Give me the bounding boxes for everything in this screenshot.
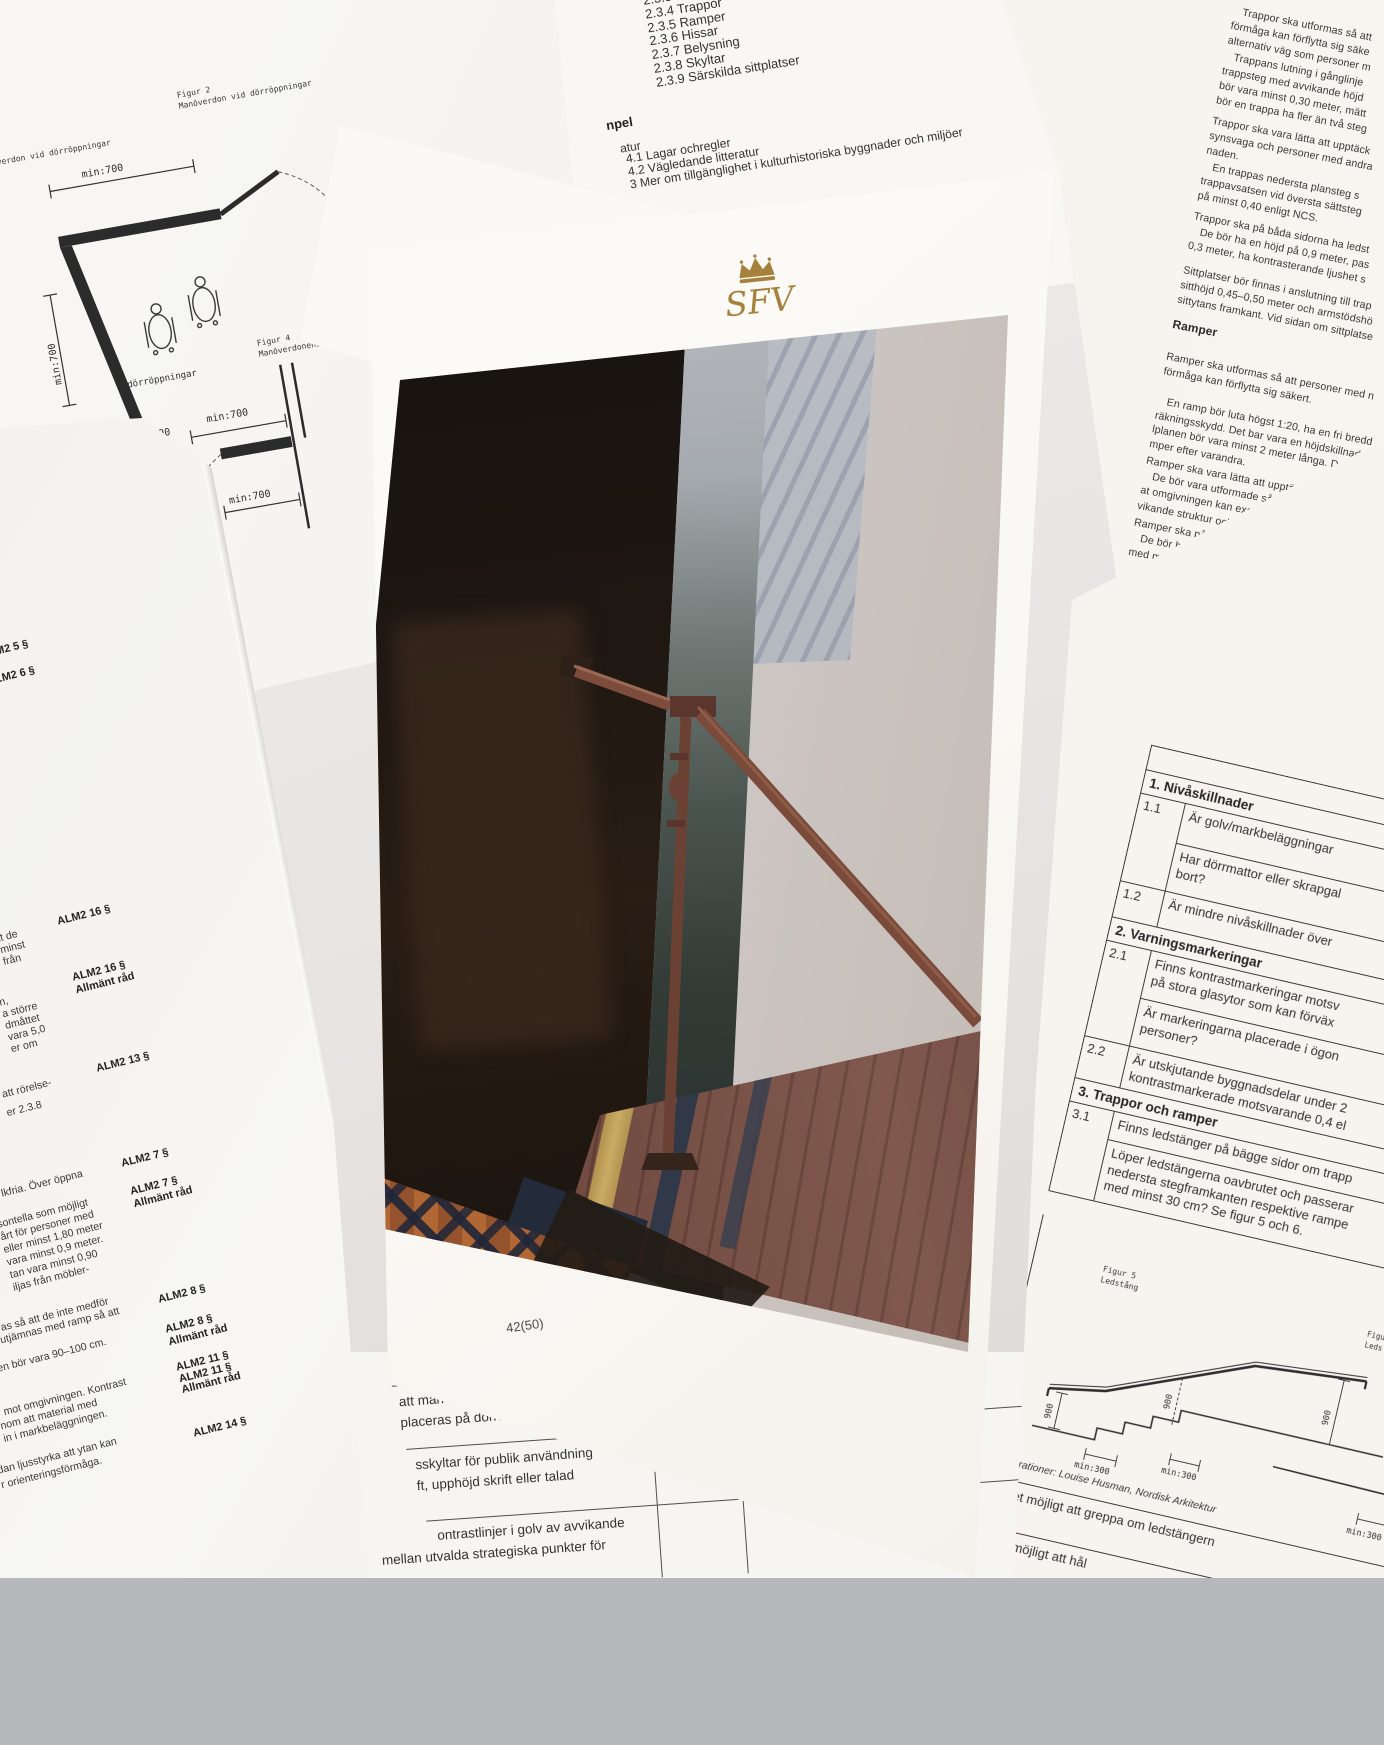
toc-item-list: 2.3.3 2.3.4 Trappor 2.3.5 Ramper 2.3.6 H… (642, 0, 801, 89)
figur2-caption: Figur 2 Manöverdon vid dörröppningar (176, 67, 313, 112)
alm-label: ALM2 16 § Allmänt råd (71, 957, 136, 996)
dim-label: min:700 (81, 163, 124, 181)
alm-label: M2 5 § (0, 638, 30, 658)
alm-label: ALM2 16 § (56, 903, 112, 928)
dim-label: min:300 (1160, 1466, 1197, 1484)
paragraph: Trappor ska utformas så att förmåga kan … (1215, 4, 1384, 138)
dim-label: 900 (1162, 1393, 1175, 1410)
photo-handrail (318, 315, 1008, 1355)
dim-label: min:300 (1345, 1526, 1382, 1544)
checklist-content: 1. Nivåskillnader A 1.1 Är golv/markbelä… (1140, 660, 1384, 831)
alm-body-fragment: n, a större dmåttet vara 5,0 er om (0, 988, 50, 1055)
alm-label: ALM2 8 § Allmänt råd (164, 1309, 229, 1348)
alm-label: ALM2 7 § (120, 1146, 170, 1170)
figur3-caption: dörröppningar (127, 368, 199, 390)
alm-label: ALM2 8 § (157, 1282, 207, 1306)
alm-body-fragment: sontella som möjligt årt för personer me… (0, 1194, 114, 1294)
alm-body-fragment: tt de minst från (0, 927, 29, 968)
alm-body-fragment: lkfria. Över öppna (0, 1168, 84, 1200)
alm-label: ALM2 13 § (95, 1050, 151, 1075)
dim-label: 900 (1043, 1403, 1056, 1420)
ramper-heading: Ramper (1171, 317, 1218, 341)
alm-label: ALM2 7 § Allmänt råd (129, 1171, 194, 1210)
right-text-block: Trappor ska utformas så att förmåga kan … (1235, 4, 1384, 92)
table-row: sskyltar för publik användning ft, upphö… (415, 1442, 595, 1496)
sfv-logo-text: SFV (706, 282, 813, 323)
alm-label: ALM2 14 § (192, 1415, 248, 1440)
sfv-logo: SFV (703, 249, 813, 323)
desk-photo-of-documents: Figur 2 Manöverdon vid dörröppningar ver… (0, 0, 1384, 1578)
alm-body-fragment: att rörelse- er 2.3.8 (0, 1074, 58, 1123)
page-number: 42(50) (505, 1315, 544, 1335)
alm-label: ALM2 11 § ALM2 11 § Allmänt råd (175, 1348, 242, 1396)
alm-label: LM2 6 § (0, 664, 36, 686)
alm-body-fragment: dan ljusstyrka att ytan kan r orienterin… (0, 1434, 122, 1493)
dim-label: min:700 (228, 489, 271, 507)
toc-heading-fragment: npel (605, 114, 634, 133)
staircase-photo (318, 315, 1008, 1355)
toc-reference-lines: 4.1 Lagar ochregler 4.2 Vägledande litte… (625, 100, 964, 191)
dim-label: min:700 (206, 407, 249, 425)
